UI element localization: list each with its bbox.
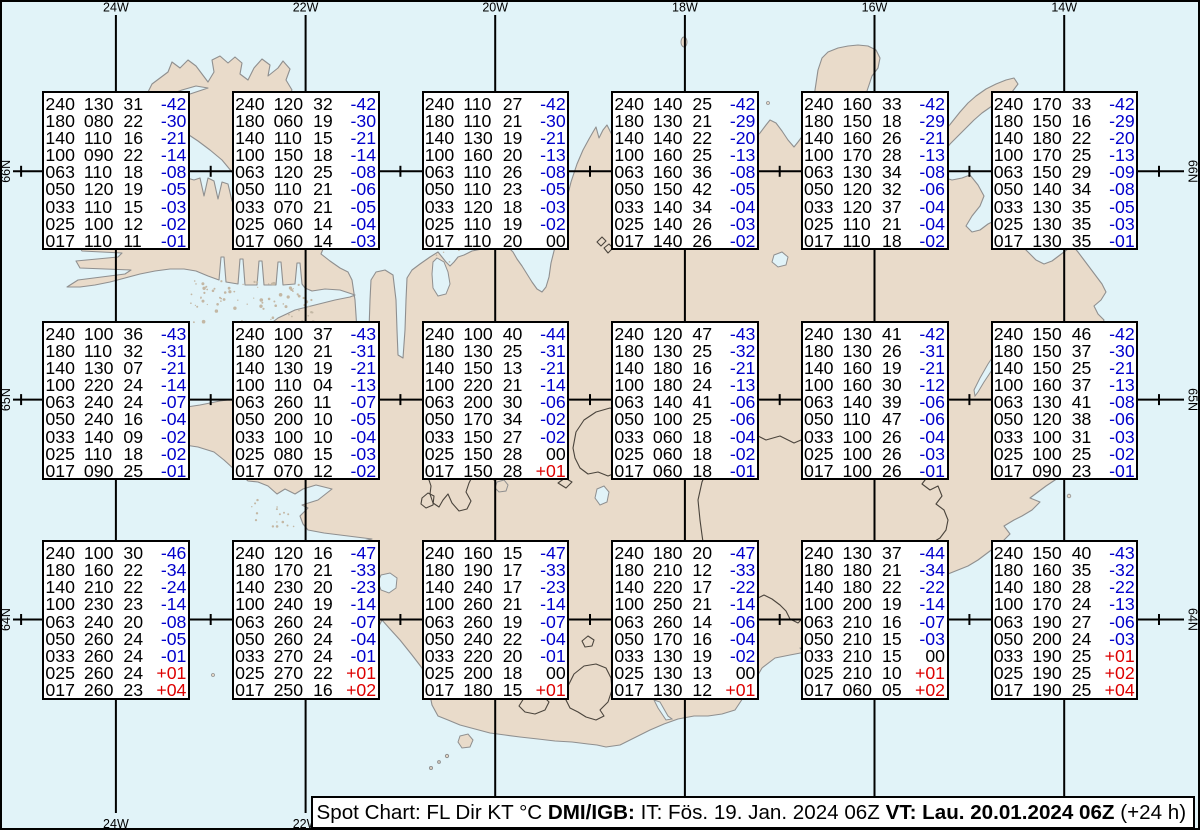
svg-text:16W: 16W: [862, 1, 888, 15]
svg-text:18W: 18W: [672, 1, 698, 15]
svg-text:64N: 64N: [1186, 608, 1200, 631]
svg-text:65N: 65N: [1186, 388, 1200, 411]
svg-text:14W: 14W: [1051, 1, 1077, 15]
svg-text:24W: 24W: [103, 1, 129, 15]
svg-text:66N: 66N: [1186, 160, 1200, 183]
svg-text:20W: 20W: [482, 1, 508, 15]
svg-text:22W: 22W: [293, 1, 319, 15]
